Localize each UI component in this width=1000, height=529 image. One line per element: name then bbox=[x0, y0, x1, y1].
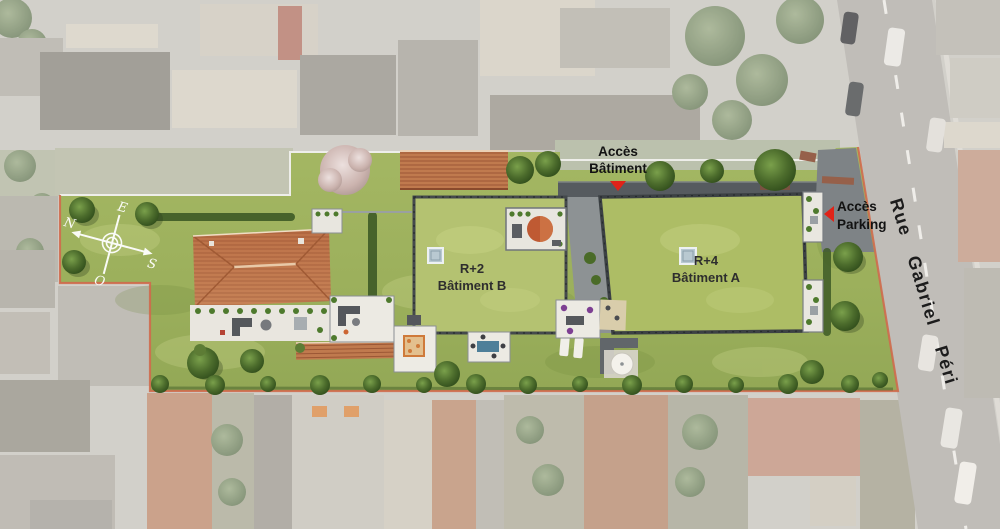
neighbour-roof bbox=[400, 150, 508, 190]
terrace-existing-building bbox=[190, 305, 332, 341]
building-b-label: R+2 Bâtiment B bbox=[410, 261, 534, 295]
access-parking-label: Accès Parking bbox=[837, 198, 887, 234]
building-a-name: Bâtiment A bbox=[644, 270, 768, 287]
building-b-name: Bâtiment B bbox=[410, 278, 534, 295]
access-parking-line1: Accès bbox=[837, 198, 887, 216]
hedge-east bbox=[823, 248, 831, 336]
access-parking-line2: Parking bbox=[837, 216, 887, 234]
pergola-roof bbox=[296, 341, 394, 360]
access-building-line2: Bâtiment bbox=[570, 161, 666, 178]
existing-building-terracotta bbox=[193, 229, 331, 307]
roof-terrace-parasol bbox=[506, 208, 566, 250]
access-building-label: Accès Bâtiment bbox=[570, 144, 666, 178]
building-a-label: R+4 Bâtiment A bbox=[644, 253, 768, 287]
building-b-level: R+2 bbox=[410, 261, 534, 278]
hedge-horizontal bbox=[150, 213, 295, 221]
building-a-level: R+4 bbox=[644, 253, 768, 270]
access-building-line1: Accès bbox=[570, 144, 666, 161]
site-plan-canvas: E S O N Accès Bâtiment Accès Parking R+2… bbox=[0, 0, 1000, 529]
